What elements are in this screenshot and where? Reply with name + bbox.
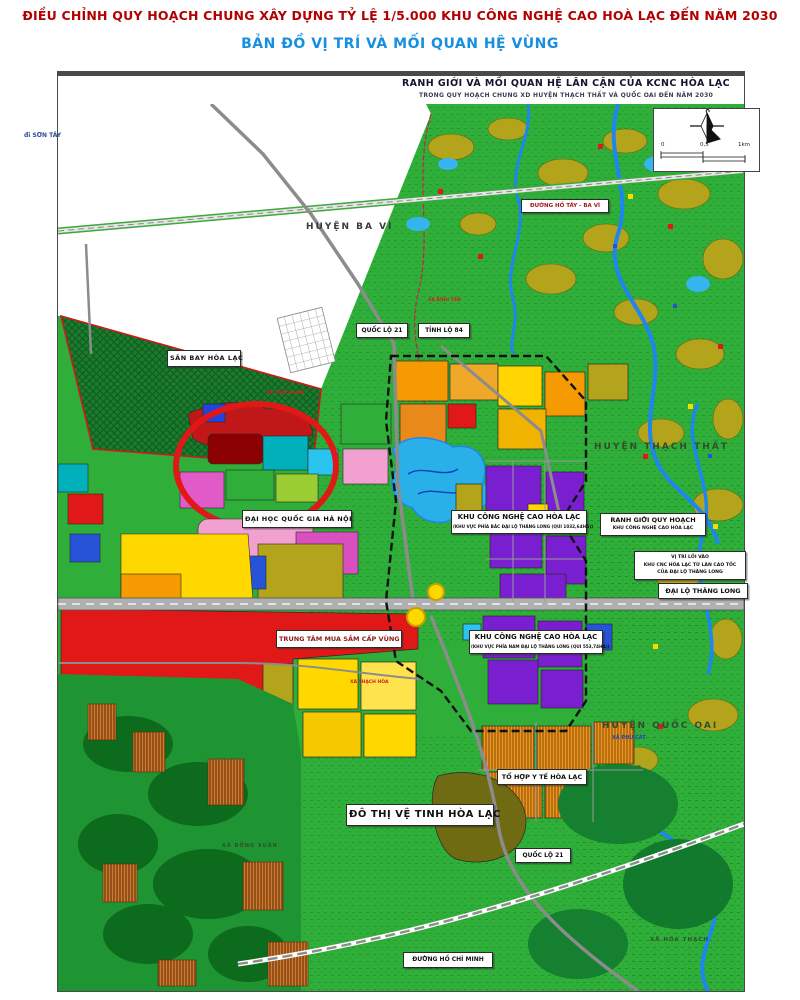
hitech-north-label-line1: KHU CÔNG NGHỆ CAO HÒA LẠC bbox=[453, 513, 585, 522]
satellite-town-label: ĐÔ THỊ VỆ TINH HÒA LẠC bbox=[346, 804, 494, 826]
map-header-title: RANH GIỚI VÀ MỐI QUAN HỆ LÂN CẬN CỦA KCN… bbox=[388, 78, 744, 89]
road-label-ql21-south: QUỐC LỘ 21 bbox=[515, 848, 571, 863]
commune-label-hoa-thach: XÃ HÒA THẠCH bbox=[650, 937, 709, 943]
shopping-center-label: TRUNG TÂM MUA SẮM CẤP VÙNG bbox=[276, 630, 402, 648]
compass-scale-box: 0 0,5 1km bbox=[653, 108, 760, 172]
map-header: RANH GIỚI VÀ MỐI QUAN HỆ LÂN CẬN CỦA KCN… bbox=[58, 76, 744, 105]
map-header-subtitle: TRONG QUY HOẠCH CHUNG XD HUYỆN THẠCH THẤ… bbox=[388, 92, 744, 99]
map-frame: RANH GIỚI VÀ MỐI QUAN HỆ LÂN CẬN CỦA KCN… bbox=[57, 71, 745, 992]
road-label-ho-tay-ba-vi: ĐƯỜNG HỒ TÂY - BA VÌ bbox=[521, 199, 609, 213]
road-label-tl84: TỈNH LỘ 84 bbox=[418, 323, 470, 338]
north-arrow-icon bbox=[654, 109, 759, 171]
entrance-label-line3: CỦA ĐẠI LỘ THĂNG LONG bbox=[636, 569, 744, 577]
boundary-label-line1: RANH GIỚI QUY HOẠCH bbox=[602, 516, 704, 525]
district-label-ba-vi: HUYỆN BA VÌ bbox=[306, 222, 393, 232]
commune-label-phu-cat: XÃ PHÚ CÁT bbox=[612, 735, 646, 741]
commune-label-thach-hoa-north: XÃ THẠCH HÒA bbox=[266, 391, 304, 396]
university-label: ĐẠI HỌC QUỐC GIA HÀ NỘI bbox=[242, 510, 352, 528]
hitech-north-label: KHU CÔNG NGHỆ CAO HÒA LẠC (KHU VỰC PHÍA … bbox=[451, 510, 587, 534]
district-label-thach-that: HUYỆN THẠCH THẤT bbox=[594, 442, 729, 452]
hitech-north-label-line2: (KHU VỰC PHÍA BẮC ĐẠI LỘ THĂNG LONG (QUI… bbox=[453, 522, 585, 531]
entrance-label-line1: VỊ TRÍ LỐI VÀO bbox=[636, 554, 744, 562]
road-label-di-son-tay: đi SƠN TÂY bbox=[24, 132, 61, 139]
scale-tick-0: 0 bbox=[661, 142, 665, 148]
hitech-south-label-line1: KHU CÔNG NGHỆ CAO HÒA LẠC bbox=[471, 633, 601, 642]
hitech-south-label-line2: (KHU VỰC PHÍA NAM ĐẠI LỘ THĂNG LONG (QUI… bbox=[471, 642, 601, 651]
boundary-label-line2: KHU CÔNG NGHỆ CAO HÒA LẠC bbox=[602, 525, 704, 534]
medical-complex-label: TỔ HỢP Y TẾ HÒA LẠC bbox=[497, 769, 587, 785]
commune-label-binh-yen: XÃ BÌNH YÊN bbox=[428, 298, 461, 303]
airport-label: SÂN BAY HÒA LẠC bbox=[167, 350, 241, 367]
scale-tick-1km: 1km bbox=[738, 142, 750, 148]
planning-map-page: { "page": { "title": "ĐIỀU CHỈNH QUY HOẠ… bbox=[0, 0, 800, 1000]
district-label-quoc-oai: HUYỆN QUỐC OAI bbox=[602, 721, 718, 731]
forest-southwest bbox=[58, 674, 308, 991]
map-canvas bbox=[58, 104, 744, 991]
boundary-label: RANH GIỚI QUY HOẠCH KHU CÔNG NGHỆ CAO HÒ… bbox=[600, 513, 706, 536]
scale-tick-05: 0,5 bbox=[700, 142, 709, 148]
road-label-ho-chi-minh: ĐƯỜNG HỒ CHÍ MINH bbox=[403, 952, 493, 968]
commune-label-dong-xuan: XÃ ĐỒNG XUÂN bbox=[222, 843, 278, 849]
hitech-south-label: KHU CÔNG NGHỆ CAO HÒA LẠC (KHU VỰC PHÍA … bbox=[469, 630, 603, 654]
commune-label-thach-hoa-south: XÃ THẠCH HÒA bbox=[350, 680, 388, 685]
road-label-ql21-north: QUỐC LỘ 21 bbox=[356, 323, 408, 338]
page-subtitle: BẢN ĐỒ VỊ TRÍ VÀ MỐI QUAN HỆ VÙNG bbox=[0, 36, 800, 52]
entrance-label-line2: KHU CNC HÒA LẠC TỪ LÀN CAO TỐC bbox=[636, 562, 744, 570]
expressway-label: ĐẠI LỘ THĂNG LONG bbox=[658, 583, 748, 599]
page-title: ĐIỀU CHỈNH QUY HOẠCH CHUNG XÂY DỰNG TỶ L… bbox=[0, 8, 800, 23]
entrance-label: VỊ TRÍ LỐI VÀO KHU CNC HÒA LẠC TỪ LÀN CA… bbox=[634, 551, 746, 580]
